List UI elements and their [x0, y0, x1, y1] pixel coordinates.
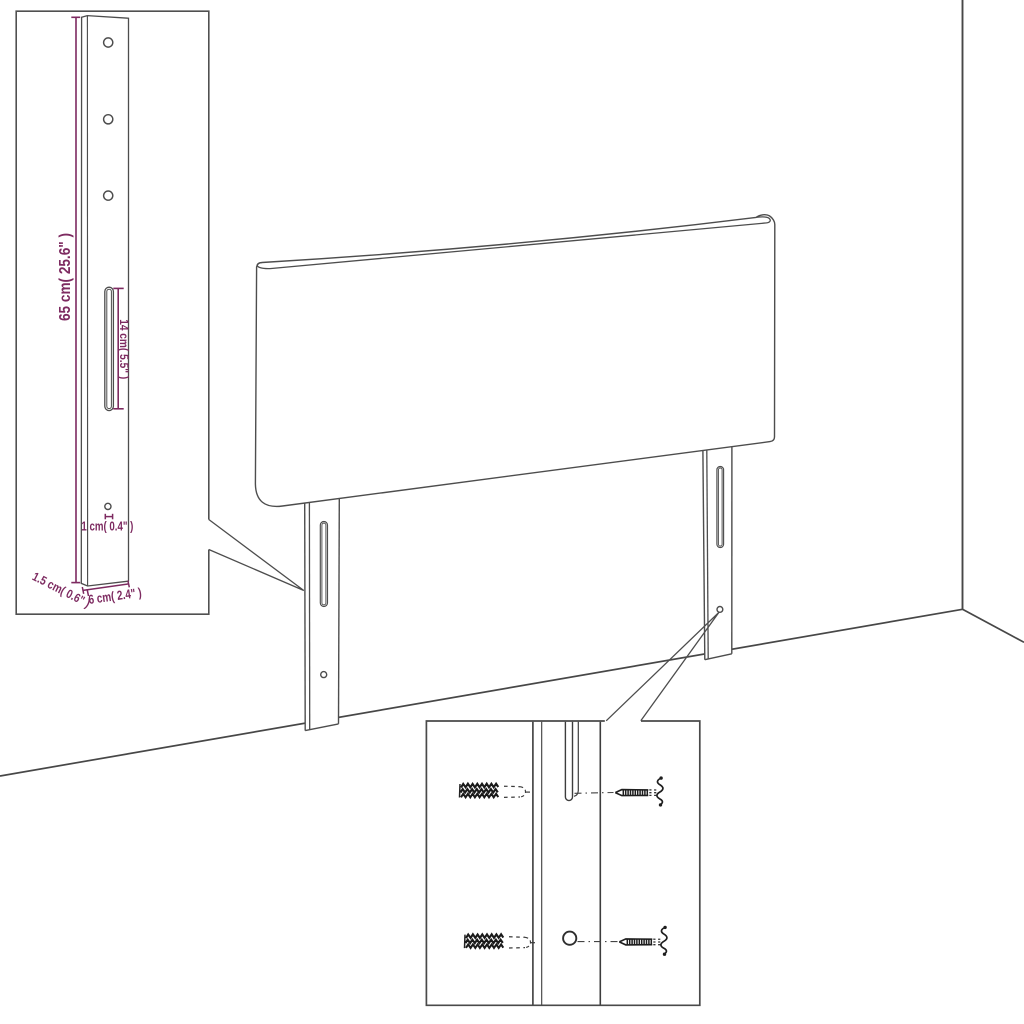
svg-text:14 cm( 5.5" ): 14 cm( 5.5" ) — [117, 319, 131, 379]
svg-text:1 cm( 0.4" ): 1 cm( 0.4" ) — [81, 519, 133, 534]
svg-text:65 cm( 25.6" ): 65 cm( 25.6" ) — [57, 233, 74, 321]
